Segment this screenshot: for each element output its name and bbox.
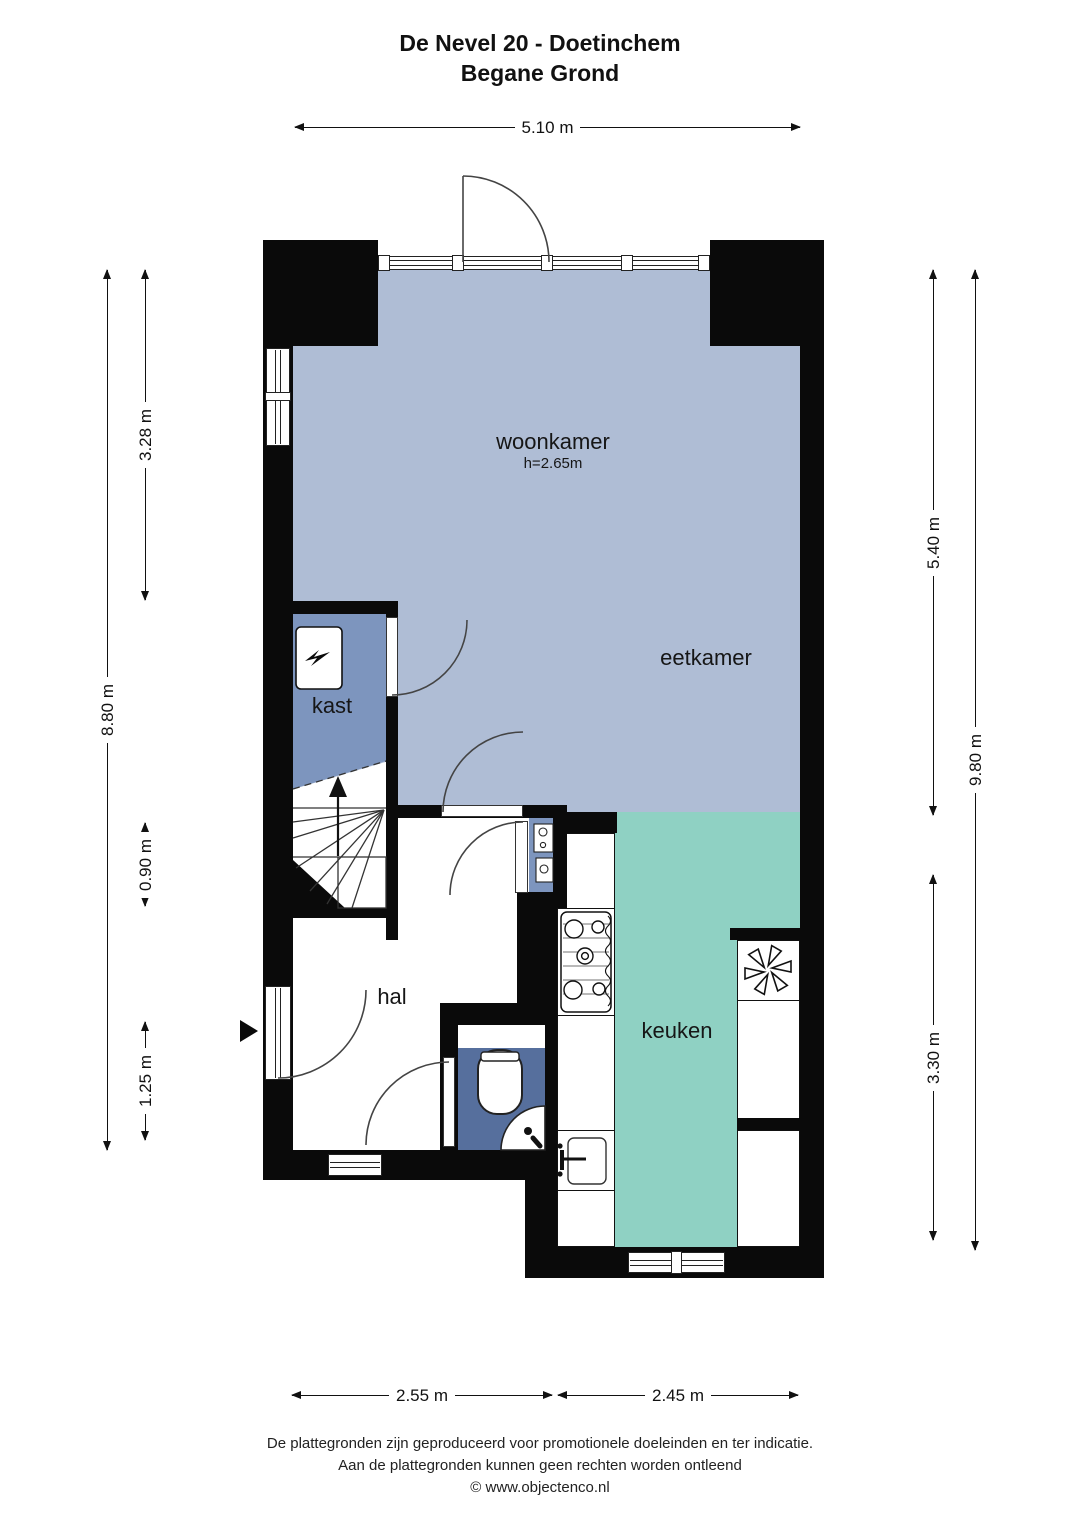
- toilet-door-arc: [366, 1062, 449, 1145]
- label-eetkamer: eetkamer: [606, 645, 806, 671]
- footer-copyright: © www.objectenco.nl: [0, 1477, 1080, 1499]
- meter-cabinet-icon: [534, 824, 553, 882]
- entrance-arrow-icon: [240, 1020, 258, 1042]
- label-woonkamer: woonkamer: [453, 429, 653, 455]
- label-hal: hal: [342, 984, 442, 1010]
- label-kast: kast: [282, 693, 382, 719]
- sink-icon: [557, 1138, 606, 1184]
- front-door-arc: [463, 176, 549, 262]
- label-woonkamer-height: h=2.65m: [453, 455, 653, 472]
- footer-disclaimer-line1: De plattegronden zijn geproduceerd voor …: [0, 1433, 1080, 1455]
- plan-symbols-layer: [0, 0, 1080, 1527]
- floorplan-page: De Nevel 20 - Doetinchem Begane Grond: [0, 0, 1080, 1527]
- wall-understair-diagonal: [293, 860, 345, 918]
- meterkast-door-arc: [450, 822, 523, 895]
- footer-disclaimer-line2: Aan de plattegronden kunnen geen rechten…: [0, 1455, 1080, 1477]
- label-keuken: keuken: [577, 1018, 777, 1044]
- eetkamer-door-arc: [443, 732, 523, 812]
- toilet-icon: [478, 1050, 522, 1114]
- kast-door-arc: [392, 620, 467, 695]
- boiler-icon: [296, 627, 342, 689]
- stove-icon: [561, 912, 611, 1012]
- fan-icon: [745, 946, 791, 995]
